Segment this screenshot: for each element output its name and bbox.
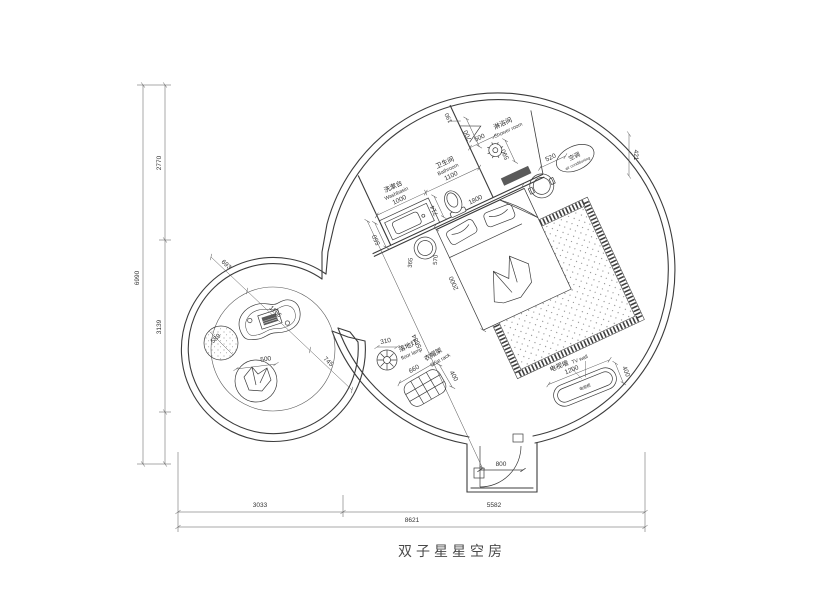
dim-coatrack-660: 660	[408, 363, 421, 375]
dim-bed-1800: 1800	[468, 194, 484, 207]
toilet	[441, 188, 466, 218]
dim-6990: 6990	[134, 270, 141, 285]
dim-3139: 3139	[156, 319, 163, 334]
dim-door-800: 800	[496, 461, 507, 468]
dim-421-line	[627, 131, 631, 178]
faucet	[421, 214, 425, 218]
left-dimensions	[137, 82, 171, 466]
dim-lamp-310: 310	[380, 337, 392, 346]
dim-tv-400: 400	[620, 365, 631, 378]
dim-8621: 8621	[405, 517, 420, 524]
lounge-chair	[233, 360, 278, 402]
shower-glass-wall	[516, 110, 557, 174]
floorplan-canvas: 800	[0, 0, 837, 592]
dim-stool-365: 365	[408, 257, 415, 268]
dim-693: 693	[220, 259, 233, 272]
door-frame-block	[513, 434, 523, 442]
dim-2770: 2770	[156, 155, 163, 170]
dim-ac-520: 520	[544, 152, 557, 163]
dim-190: 190	[444, 111, 454, 123]
dim-chair-500: 500	[260, 355, 272, 363]
suite-rotated-group: 空调 air conditioning 洗漱台	[329, 58, 696, 473]
dim-3033: 3033	[253, 502, 268, 509]
tv-cabinet-label: 电视柜	[578, 382, 591, 392]
pouf	[204, 326, 238, 360]
corridor-wall-top	[322, 224, 334, 279]
door-leaf-block	[474, 468, 484, 478]
floor-lamp-icon	[374, 345, 399, 370]
dim-stool-570: 570	[433, 254, 440, 265]
shower-bench	[501, 166, 532, 186]
bean-table	[234, 292, 305, 345]
dim-coatrack-400: 400	[448, 370, 460, 383]
dim-421: 421	[632, 150, 639, 161]
floorplan-drawing: 800	[0, 0, 837, 592]
lounge-group: 589 500 693 1166 745	[204, 254, 355, 402]
sink	[391, 211, 422, 235]
tv-wall-label-en: TV wall	[571, 354, 589, 366]
dim-5582: 5582	[487, 502, 502, 509]
lounge-diagonal-dim	[208, 254, 355, 393]
partition-bathroom-shower	[450, 105, 493, 197]
corridor-wall-bottom	[332, 328, 365, 342]
drawing-title: 双子星星空房	[398, 543, 506, 559]
